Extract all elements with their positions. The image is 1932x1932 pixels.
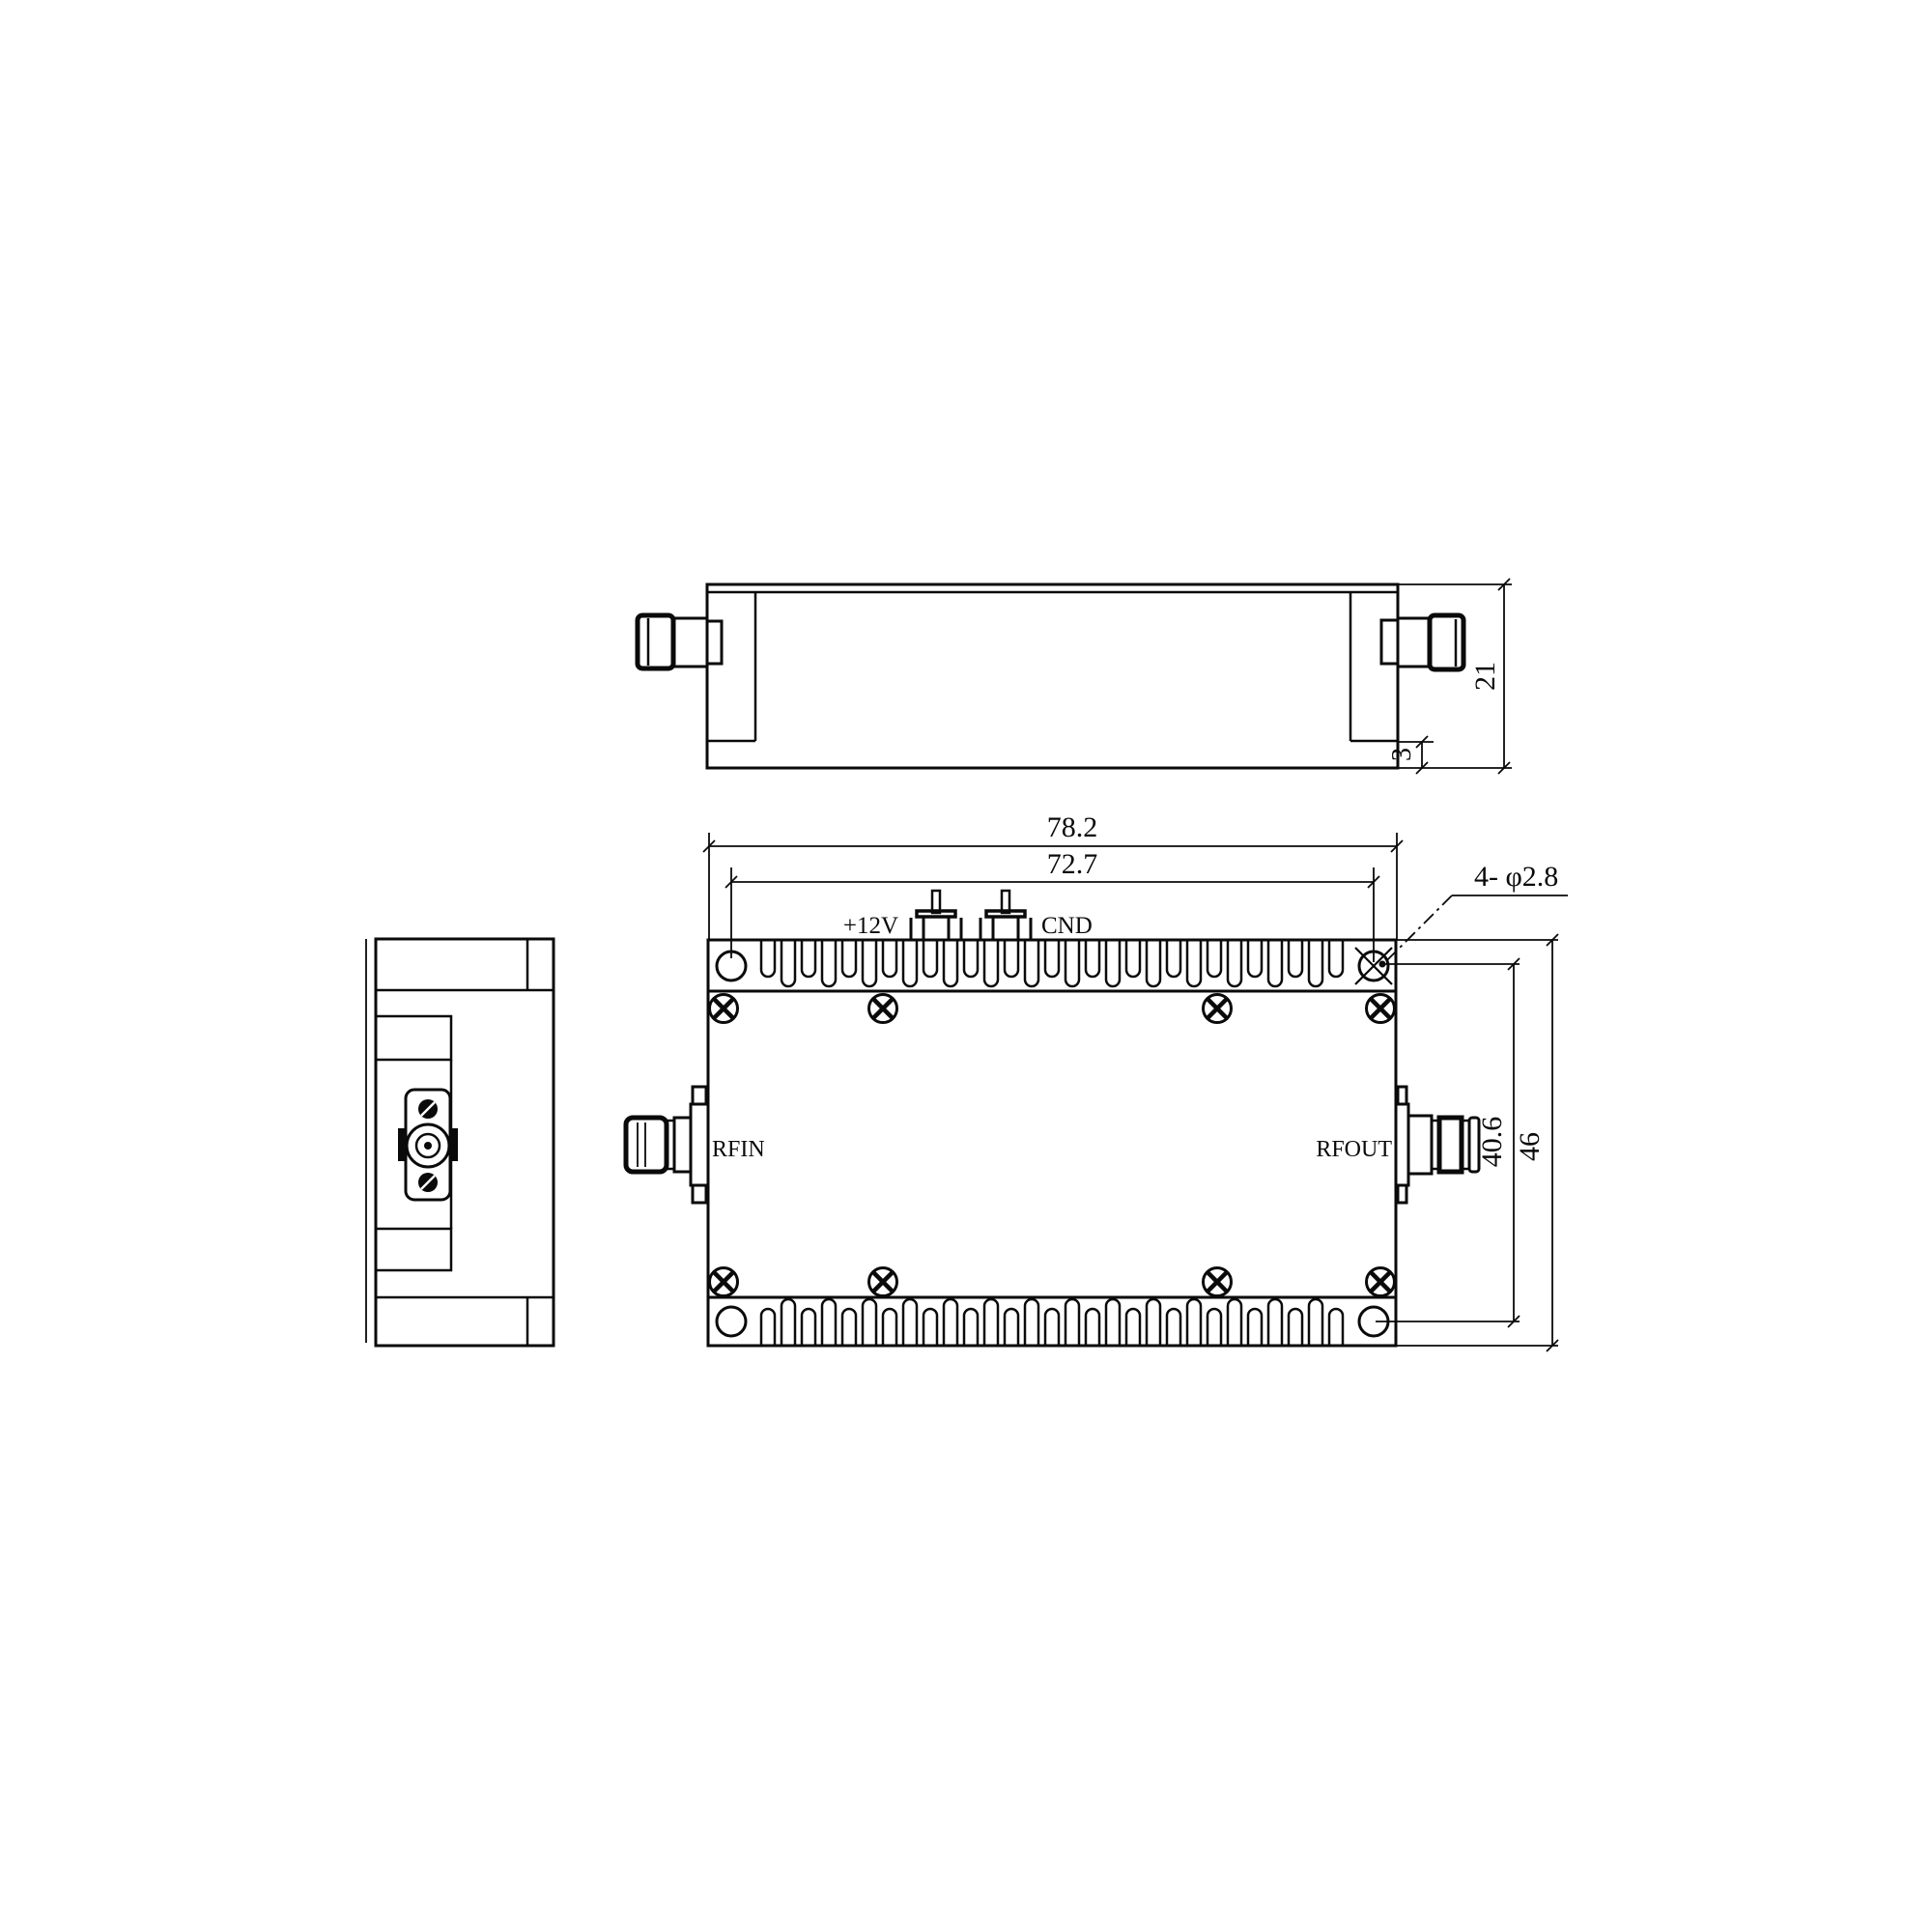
screw-icon xyxy=(1204,995,1232,1023)
dim-21: 21 xyxy=(1469,662,1501,691)
label-plus12v: +12V xyxy=(843,913,898,939)
screw-icon xyxy=(710,995,738,1023)
power-pin-icon xyxy=(911,891,961,940)
mounting-hole-note: 4- φ2.8 xyxy=(1379,861,1569,968)
power-pins xyxy=(911,891,1031,940)
screw-icon xyxy=(710,1268,738,1296)
dim-40-6: 40.6 xyxy=(1476,1117,1508,1168)
dim-46: 46 xyxy=(1514,1132,1546,1161)
screw-icon xyxy=(869,1268,897,1296)
screw-icon xyxy=(1367,995,1395,1023)
screw-icon xyxy=(869,995,897,1023)
dimension-height-21: 21 xyxy=(1398,579,1512,774)
heatsink-fins-bottom xyxy=(761,1299,1343,1345)
power-pin-icon xyxy=(980,891,1031,940)
dim-holes-note: 4- φ2.8 xyxy=(1474,861,1558,893)
label-cnd: CND xyxy=(1041,913,1093,939)
end-view xyxy=(366,939,554,1346)
side-view-input-connector xyxy=(638,615,722,668)
heatsink-fins-top xyxy=(761,942,1343,987)
side-elevation-view: 21 3 xyxy=(638,579,1512,774)
rfout-connector xyxy=(1396,1087,1479,1203)
end-view-connector xyxy=(398,1090,458,1200)
plan-dimensions: 78.2 72.7 4- φ2.8 40.6 xyxy=(703,811,1568,1351)
drawing-canvas: 21 3 xyxy=(0,0,1932,1932)
rfin-connector xyxy=(626,1087,708,1203)
label-rfout: RFOUT xyxy=(1316,1137,1392,1162)
side-view-output-connector xyxy=(1381,615,1463,669)
screw-icon xyxy=(1204,1268,1232,1296)
technical-drawing: 21 3 xyxy=(0,0,1932,1932)
screw-icon xyxy=(1367,1268,1395,1296)
dim-3: 3 xyxy=(1387,748,1417,761)
cover-screws xyxy=(710,995,1395,1296)
plan-view: +12V CND RFIN RFOUT xyxy=(626,891,1479,1346)
mounting-holes xyxy=(717,948,1392,1336)
dim-72-7: 72.7 xyxy=(1047,848,1098,880)
label-rfin: RFIN xyxy=(712,1137,765,1162)
dim-78-2: 78.2 xyxy=(1047,811,1098,843)
mounting-hole-icon xyxy=(717,1307,746,1336)
